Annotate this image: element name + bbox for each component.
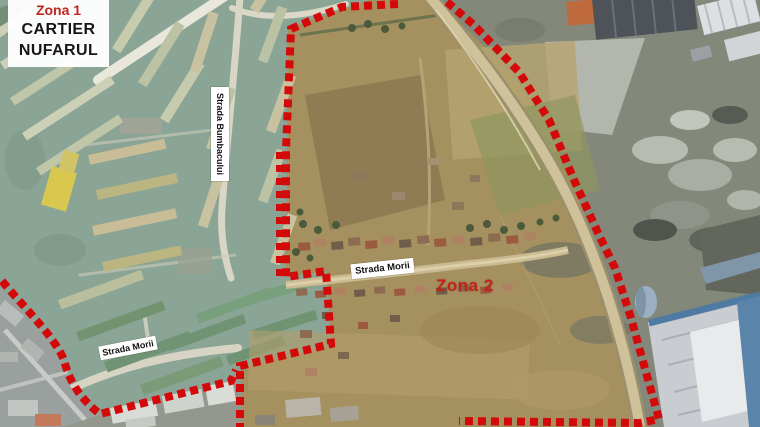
district-name-line2: NUFARUL	[19, 40, 98, 61]
zone2-label: Zona 2	[436, 276, 494, 296]
zone1-label: Zona 1	[36, 2, 81, 18]
street-label-bumbacului: Strada Bumbacului	[211, 87, 229, 181]
aerial-zone-map: Zona 1 CARTIER NUFARUL Strada Bumbacului…	[0, 0, 760, 427]
district-name-line1: CARTIER	[22, 19, 96, 40]
aerial-photo-canvas	[0, 0, 760, 427]
legend-panel: Zona 1 CARTIER NUFARUL	[8, 0, 109, 67]
